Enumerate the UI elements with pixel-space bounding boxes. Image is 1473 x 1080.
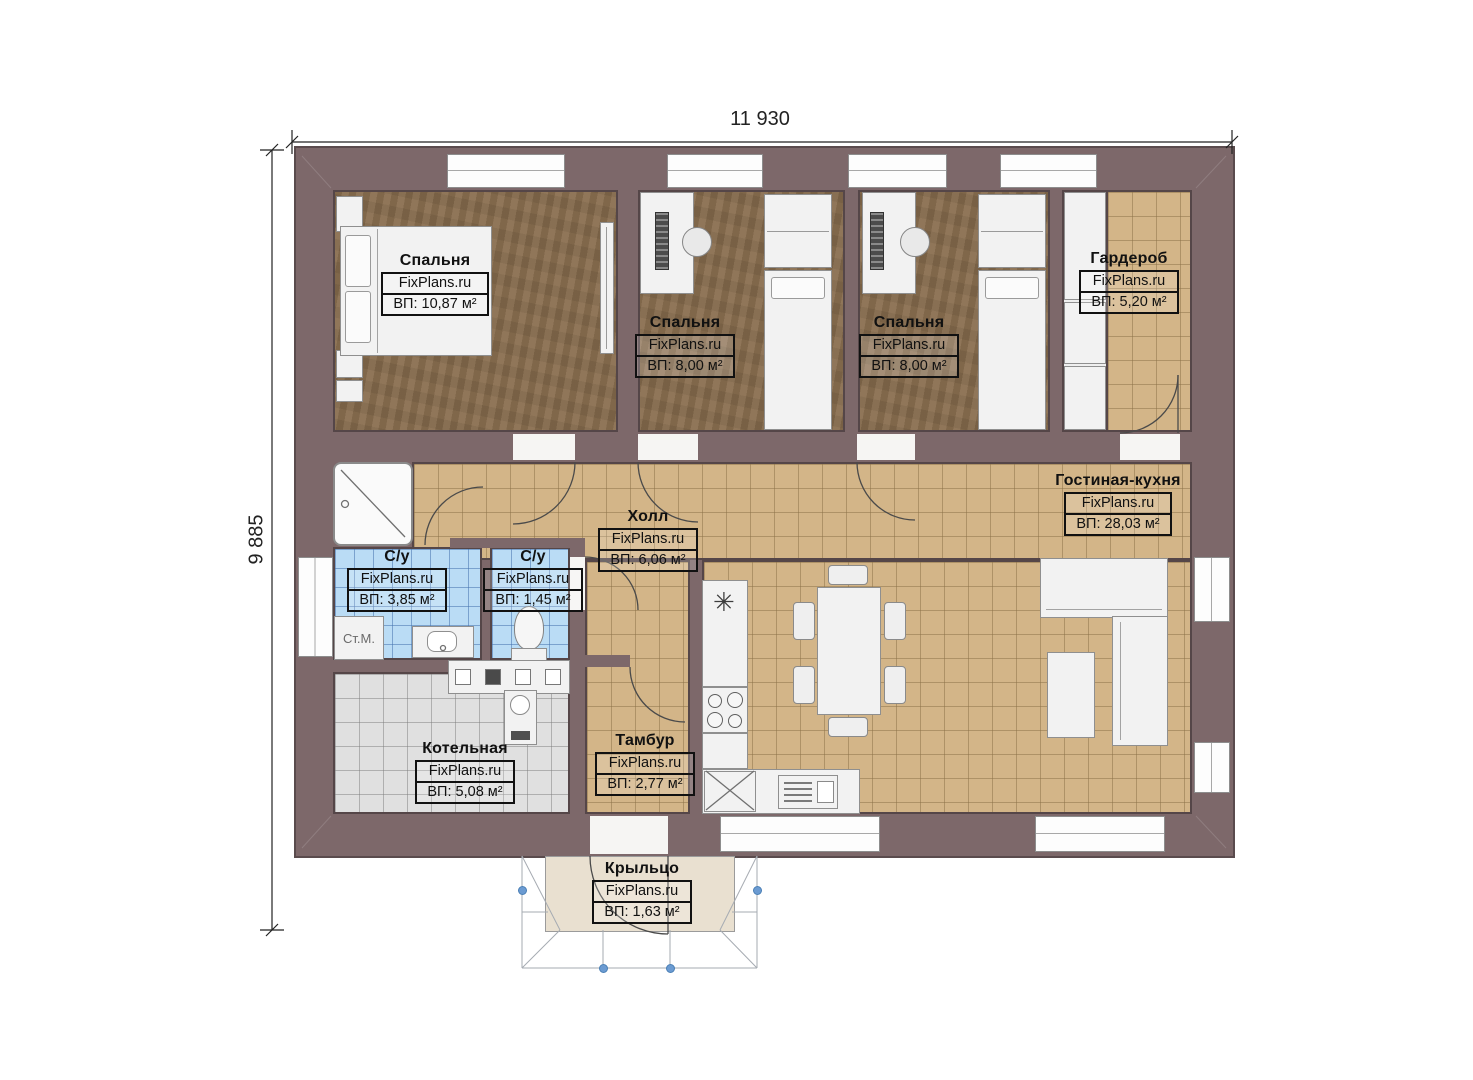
room-name: Спальня [848,314,970,332]
closet [764,194,832,268]
area-text: ВП: 28,03 м² [1066,515,1169,534]
room-info-box: FixPlans.ru ВП: 1,45 м² [483,568,582,612]
dining-chair [828,717,868,737]
dining-chair [793,602,815,640]
brand-text: FixPlans.ru [637,336,732,357]
window-top-4 [1000,154,1097,188]
area-text: ВП: 6,06 м² [600,551,695,570]
mirror [600,222,614,354]
sofa-seat-line [1046,609,1162,610]
brand-text: FixPlans.ru [1081,272,1176,293]
area-text: ВП: 3,85 м² [349,591,444,610]
single-bed [764,270,832,430]
brand-text: FixPlans.ru [1066,494,1169,515]
burner [708,694,722,708]
wall-bathroom-2-side-lower [570,610,585,660]
brand-text: FixPlans.ru [349,570,444,591]
room-label-hall: Холл FixPlans.ru ВП: 6,06 м² [588,508,708,572]
room-info-box: FixPlans.ru ВП: 5,08 м² [415,760,514,804]
room-label-porch: Крыльцо FixPlans.ru ВП: 1,63 м² [582,860,702,924]
window-bottom-2 [1035,816,1165,852]
room-name: Холл [588,508,708,526]
vanity-sink [412,626,474,658]
area-text: ВП: 10,87 м² [383,295,486,314]
wardrobe-unit [1064,366,1106,430]
mirror-line [606,227,607,349]
sink-basin [427,631,457,652]
brand-text: FixPlans.ru [417,762,512,783]
room-info-box: FixPlans.ru ВП: 6,06 м² [598,528,697,572]
area-text: ВП: 5,20 м² [1081,293,1176,312]
office-chair [682,227,712,257]
brand-text: FixPlans.ru [383,274,486,295]
room-name: Гардероб [1066,250,1192,268]
toilet-bowl [514,606,544,650]
room-name: Котельная [404,740,526,758]
porch-grip-handle[interactable] [753,886,762,895]
sofa-seat-line [1120,622,1121,740]
room-info-box: FixPlans.ru ВП: 28,03 м² [1064,492,1171,536]
burner [728,714,742,728]
burner [727,692,743,708]
door-opening-bedroom-1 [513,434,575,460]
room-name: Гостиная-кухня [1048,472,1188,490]
washing-machine: Ст.М. [334,616,384,660]
window-bottom-1 [720,816,880,852]
window-top-1 [447,154,565,188]
porch-grip-handle[interactable] [518,886,527,895]
oven-window [817,781,834,803]
single-bed [978,270,1046,430]
room-info-box: FixPlans.ru ВП: 8,00 м² [859,334,958,378]
oven-vents [784,782,812,802]
room-name: Крыльцо [582,860,702,878]
room-name: Спальня [355,252,515,270]
wall-bathrooms-top [450,538,585,548]
room-info-box: FixPlans.ru ВП: 10,87 м² [381,272,488,316]
cabinet-door [515,669,531,685]
room-name: Тамбур [588,732,702,750]
window-left-1 [298,557,333,657]
monitor-icon [655,212,669,270]
area-text: ВП: 1,63 м² [594,903,689,922]
pillow [985,277,1039,299]
porch-grip-handle[interactable] [599,964,608,973]
corner-sofa-top [1040,558,1168,618]
brand-text: FixPlans.ru [594,882,689,903]
room-name: С/у [478,548,588,566]
boiler-grill [511,731,530,740]
kitchen-counter [702,733,748,769]
corner-sofa-right [1112,616,1168,746]
toilet-tank [511,648,547,661]
area-text: ВП: 8,00 м² [637,357,732,376]
room-label-bathroom-1: С/у FixPlans.ru ВП: 3,85 м² [342,548,452,612]
fridge [704,771,756,812]
closet-divider [767,231,829,232]
brand-text: FixPlans.ru [600,530,695,551]
room-label-bedroom-1: Спальня FixPlans.ru ВП: 10,87 м² [355,252,515,316]
dining-chair [828,565,868,585]
burner [707,712,723,728]
room-label-boiler-room: Котельная FixPlans.ru ВП: 5,08 м² [404,740,526,804]
closet [978,194,1046,268]
dining-table [817,587,881,715]
room-label-bedroom-3: Спальня FixPlans.ru ВП: 8,00 м² [848,314,970,378]
brand-text: FixPlans.ru [485,570,580,591]
window-top-2 [667,154,763,188]
dining-chair [793,666,815,704]
office-chair [900,227,930,257]
sink-symbol-icon: ✳ [713,589,735,615]
shower-cabin [333,462,413,546]
room-info-box: FixPlans.ru ВП: 1,63 м² [592,880,691,924]
area-text: ВП: 8,00 м² [861,357,956,376]
coffee-table [1047,652,1095,738]
room-info-box: FixPlans.ru ВП: 2,77 м² [595,752,694,796]
room-label-living-kitchen: Гостиная-кухня FixPlans.ru ВП: 28,03 м² [1048,472,1188,536]
hall-cabinet [448,660,570,694]
kitchen-counter: ✳ [702,580,748,687]
porch-grip-handle[interactable] [666,964,675,973]
room-info-box: FixPlans.ru ВП: 3,85 м² [347,568,446,612]
dining-chair [884,666,906,704]
room-name: Спальня [624,314,746,332]
closet-divider [981,231,1043,232]
room-info-box: FixPlans.ru ВП: 5,20 м² [1079,270,1178,314]
dimension-height-label: 9 885 [246,495,269,585]
pillow [771,277,825,299]
area-text: ВП: 5,08 м² [417,783,512,802]
oven [778,775,838,809]
room-label-bedroom-2: Спальня FixPlans.ru ВП: 8,00 м² [624,314,746,378]
cabinet-door [545,669,561,685]
floor-plan-canvas: 11 930 9 885 [0,0,1473,1080]
dresser [336,380,363,402]
entry-door-opening [590,816,668,854]
monitor-icon [870,212,884,270]
stove [702,687,748,733]
door-opening-bedroom-2 [638,434,698,460]
cabinet-door [485,669,501,685]
boiler-unit [504,690,537,745]
dimension-width-label: 11 930 [680,108,840,131]
dining-chair [884,602,906,640]
room-label-vestibule: Тамбур FixPlans.ru ВП: 2,77 м² [588,732,702,796]
cabinet-door [455,669,471,685]
window-top-3 [848,154,947,188]
room-name: С/у [342,548,452,566]
room-label-bathroom-2: С/у FixPlans.ru ВП: 1,45 м² [478,548,588,612]
brand-text: FixPlans.ru [861,336,956,357]
door-opening-bedroom-3 [857,434,915,460]
door-opening-wardrobe [1120,434,1180,460]
wall-vestibule-partition [585,655,630,667]
window-right-2 [1194,742,1230,793]
room-label-wardrobe: Гардероб FixPlans.ru ВП: 5,20 м² [1066,250,1192,314]
room-info-box: FixPlans.ru ВП: 8,00 м² [635,334,734,378]
area-text: ВП: 2,77 м² [597,775,692,794]
window-right-1 [1194,557,1230,622]
boiler-dial [510,695,530,715]
area-text: ВП: 1,45 м² [485,591,580,610]
brand-text: FixPlans.ru [597,754,692,775]
